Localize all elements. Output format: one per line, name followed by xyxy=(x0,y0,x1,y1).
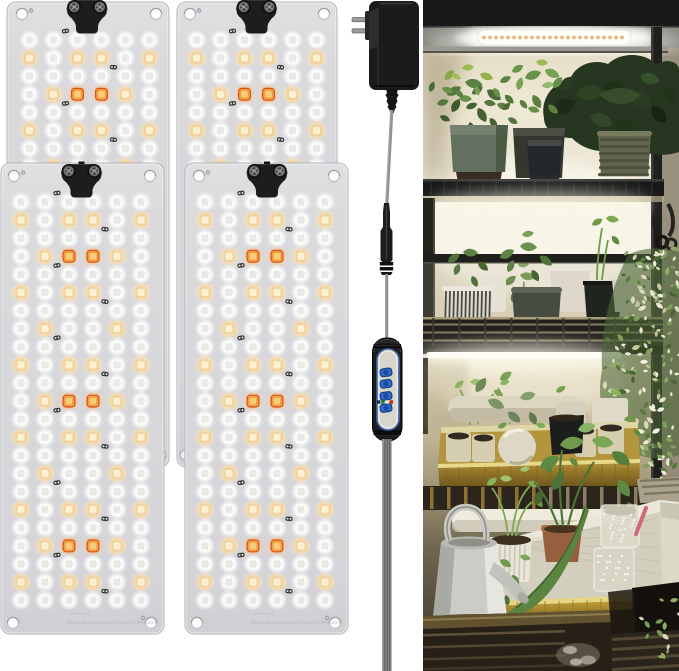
svg-text:4PCS LED GROW LIGHT PANEL FOR: 4PCS LED GROW LIGHT PANEL FOR PLANTS xyxy=(66,621,159,625)
svg-text:4PCS LED GROW LIGHT PANEL FOR: 4PCS LED GROW LIGHT PANEL FOR PLANTS xyxy=(250,621,343,625)
